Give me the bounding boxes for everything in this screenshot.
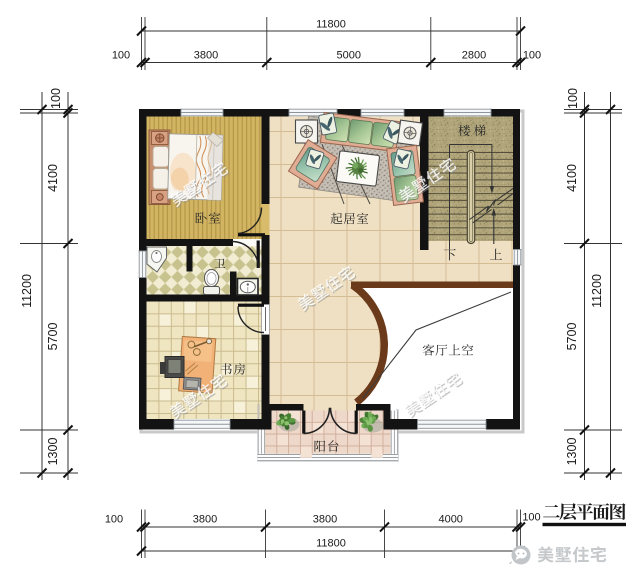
svg-text:11800: 11800 — [316, 19, 346, 31]
svg-text:5000: 5000 — [337, 50, 361, 62]
svg-text:100: 100 — [105, 514, 123, 526]
svg-text:11200: 11200 — [20, 274, 34, 308]
svg-text:4100: 4100 — [46, 164, 60, 192]
svg-text:100: 100 — [522, 512, 540, 524]
svg-text:100: 100 — [566, 88, 580, 109]
svg-text:5700: 5700 — [46, 323, 60, 351]
svg-text:100: 100 — [112, 50, 130, 62]
svg-text:11800: 11800 — [316, 538, 346, 550]
svg-text:100: 100 — [523, 50, 541, 62]
svg-text:4100: 4100 — [565, 164, 579, 192]
svg-text:2800: 2800 — [462, 50, 486, 62]
svg-text:5700: 5700 — [565, 323, 579, 351]
svg-text:3800: 3800 — [313, 514, 337, 526]
svg-text:4000: 4000 — [438, 514, 462, 526]
svg-text:3800: 3800 — [193, 514, 217, 526]
svg-text:1300: 1300 — [565, 438, 579, 466]
svg-text:1300: 1300 — [46, 438, 60, 466]
svg-text:11200: 11200 — [590, 274, 604, 308]
svg-text:100: 100 — [49, 88, 63, 109]
svg-text:3800: 3800 — [194, 50, 218, 62]
